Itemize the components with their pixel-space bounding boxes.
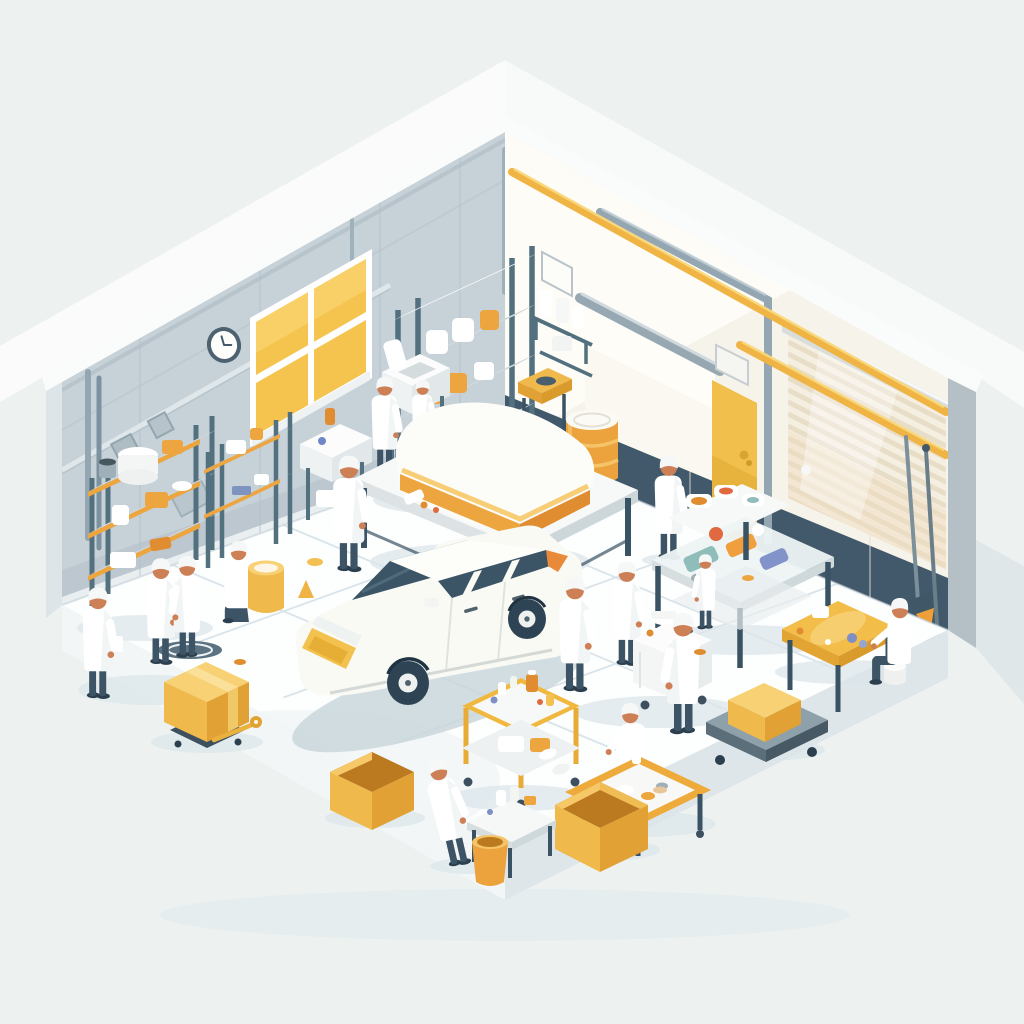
mixer-arm bbox=[632, 736, 641, 764]
yellow-drum bbox=[248, 561, 284, 614]
car-front-wheel bbox=[387, 659, 429, 705]
floor-ball bbox=[801, 465, 811, 475]
orange-bucket-front bbox=[472, 835, 508, 886]
left-wall-edge bbox=[46, 382, 62, 618]
workshop-illustration bbox=[0, 0, 1024, 1024]
door-knob bbox=[740, 451, 749, 460]
workshop-scene bbox=[0, 0, 1024, 1024]
car-mirror bbox=[424, 598, 439, 607]
wall-end-pillar bbox=[948, 378, 976, 648]
